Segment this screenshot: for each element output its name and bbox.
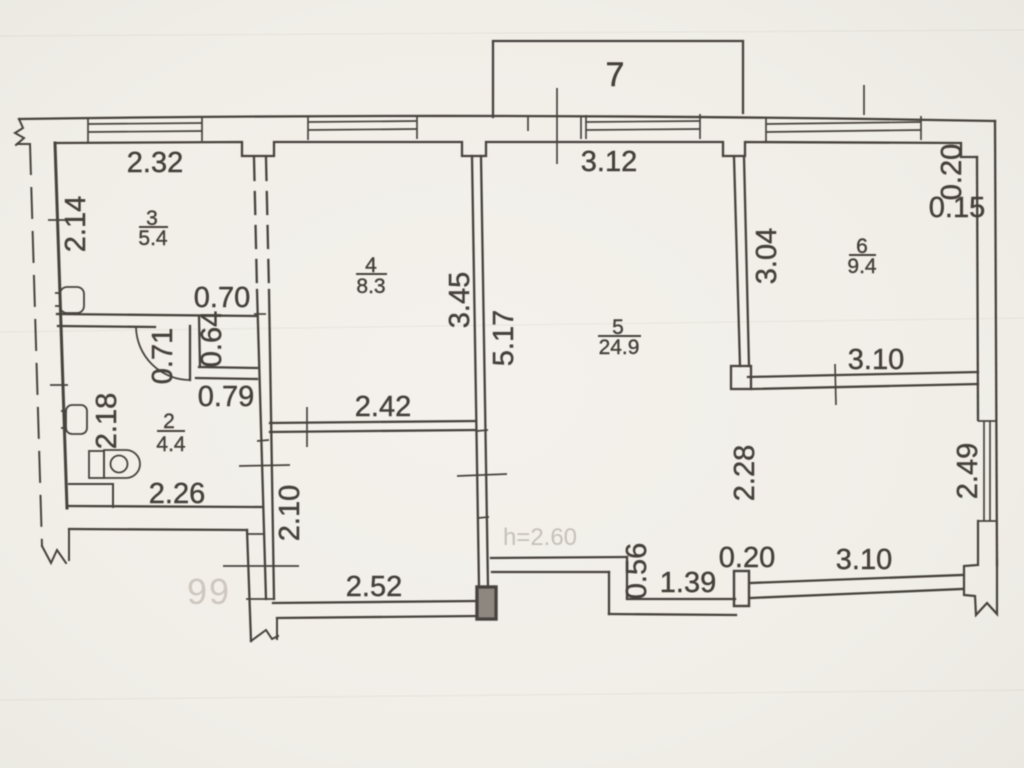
svg-text:0.70: 0.70 — [194, 282, 250, 314]
svg-text:0.79: 0.79 — [198, 381, 254, 413]
svg-text:4.4: 4.4 — [156, 433, 186, 456]
svg-text:3.12: 3.12 — [581, 146, 637, 178]
svg-text:2.49: 2.49 — [952, 443, 984, 499]
svg-text:2.28: 2.28 — [729, 445, 761, 501]
svg-text:24.9: 24.9 — [599, 336, 640, 359]
svg-text:3.10: 3.10 — [848, 344, 904, 376]
svg-text:5.4: 5.4 — [138, 227, 168, 250]
svg-text:2.18: 2.18 — [91, 393, 123, 449]
svg-text:h=2.60: h=2.60 — [503, 524, 577, 551]
svg-text:2.52: 2.52 — [346, 571, 402, 603]
svg-text:2.26: 2.26 — [149, 478, 205, 510]
svg-text:2.14: 2.14 — [60, 196, 92, 252]
svg-text:0.20: 0.20 — [936, 144, 968, 200]
svg-text:99: 99 — [187, 571, 231, 612]
svg-text:0.71: 0.71 — [147, 328, 179, 384]
svg-text:2.10: 2.10 — [274, 485, 306, 541]
svg-text:2.42: 2.42 — [355, 391, 411, 423]
svg-text:0.56: 0.56 — [621, 543, 653, 599]
svg-text:2: 2 — [163, 410, 175, 433]
svg-text:5.17: 5.17 — [488, 310, 520, 366]
svg-text:1.39: 1.39 — [660, 567, 716, 599]
svg-text:8.3: 8.3 — [356, 275, 385, 298]
svg-text:0.64: 0.64 — [196, 311, 228, 367]
svg-text:7: 7 — [606, 56, 625, 94]
svg-text:3.45: 3.45 — [444, 272, 476, 328]
svg-text:0.20: 0.20 — [719, 542, 775, 574]
svg-text:9.4: 9.4 — [847, 255, 877, 278]
svg-text:3.10: 3.10 — [836, 544, 892, 576]
svg-text:3.04: 3.04 — [751, 228, 783, 284]
svg-text:2.32: 2.32 — [127, 147, 183, 179]
